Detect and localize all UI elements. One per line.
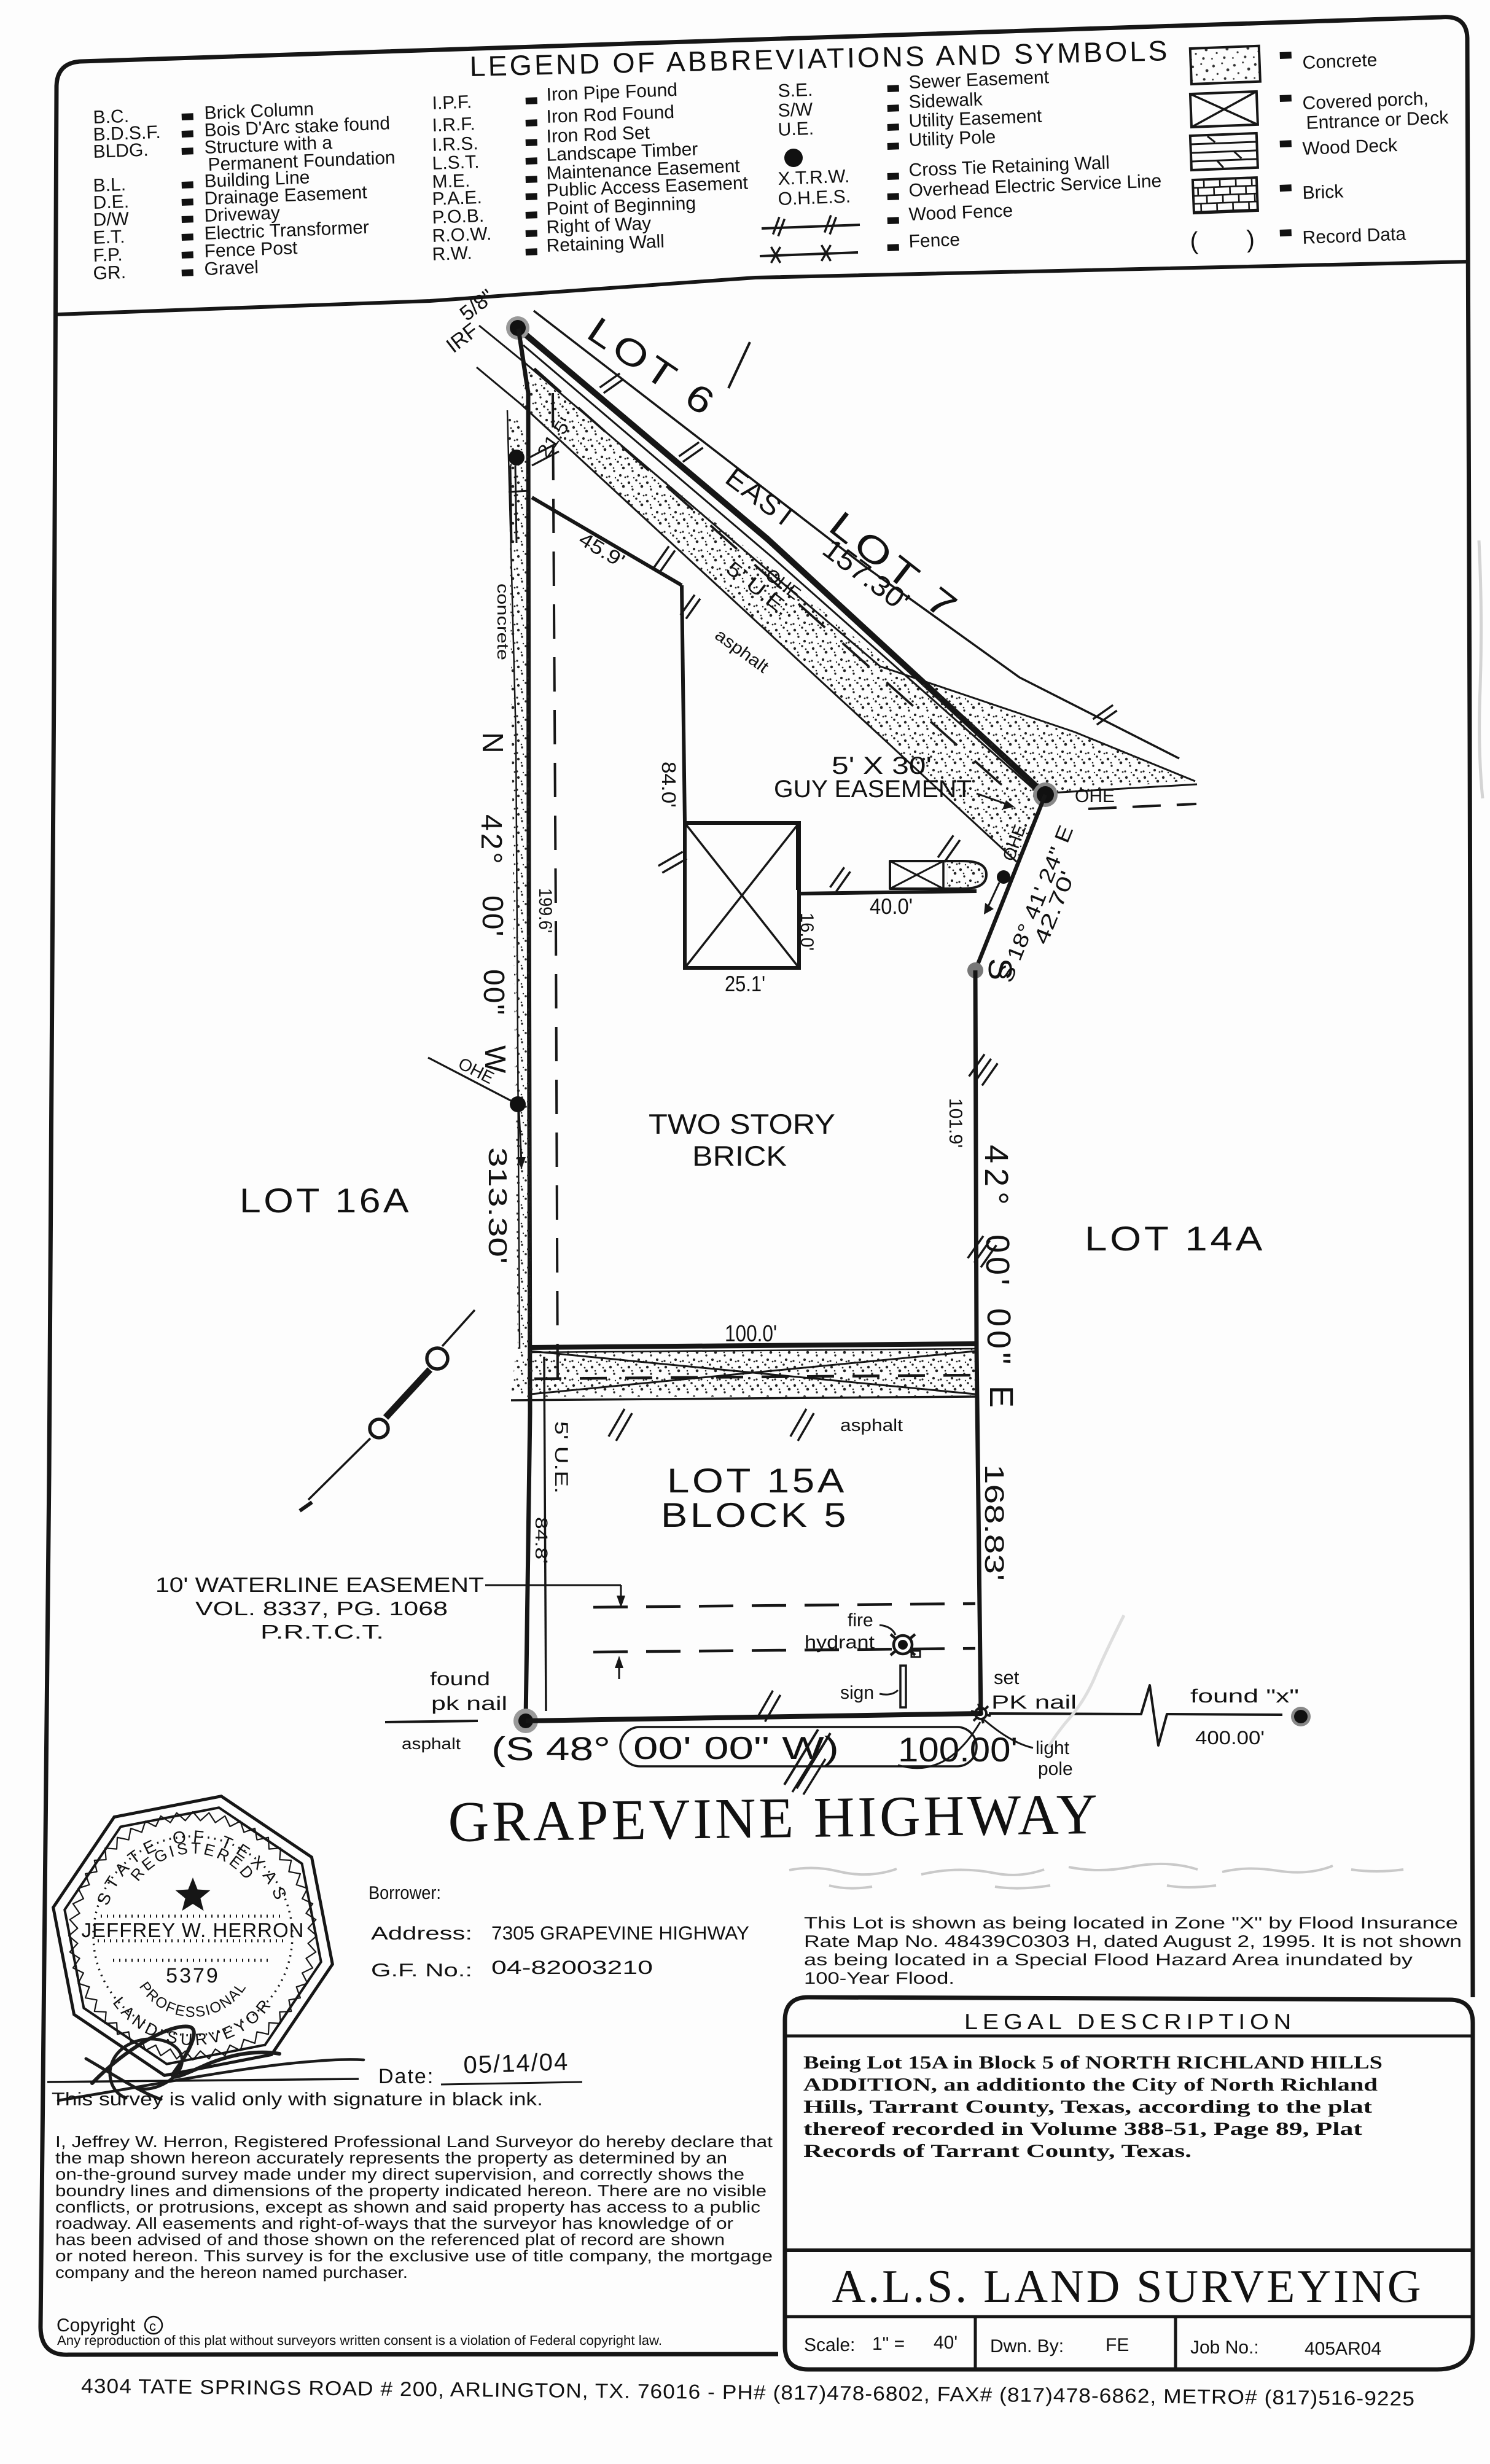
svg-text:found "x": found "x" [1190, 1685, 1299, 1707]
svg-text:(S 48°: (S 48° [491, 1731, 610, 1768]
svg-text:O.H.E.S.: O.H.E.S. [778, 186, 851, 209]
svg-text:I, Jeffrey W. Herron, Register: I, Jeffrey W. Herron, Registered Profess… [55, 2132, 773, 2151]
svg-text:Borrower:: Borrower: [369, 1883, 441, 1903]
svg-text:Job No.:: Job No.: [1190, 2337, 1259, 2358]
svg-text:sign: sign [840, 1683, 874, 1703]
svg-text:10' WATERLINE EASEMENT: 10' WATERLINE EASEMENT [155, 1573, 484, 1597]
svg-text:This Lot is shown as being loc: This Lot is shown as being located in Zo… [804, 1914, 1458, 1932]
svg-text:Wood Deck: Wood Deck [1302, 135, 1398, 159]
svg-text:LOT 16A: LOT 16A [240, 1181, 412, 1220]
svg-text:Wood Fence: Wood Fence [908, 201, 1013, 225]
svg-text:VOL. 8337, PG. 1068: VOL. 8337, PG. 1068 [195, 1597, 448, 1620]
svg-text:G.F. No.:: G.F. No.: [371, 1960, 472, 1981]
svg-text:100.00': 100.00' [898, 1730, 1018, 1769]
svg-text:ADDITION, an additionto the Ci: ADDITION, an additionto the City of Nort… [803, 2075, 1378, 2095]
svg-text:(: ( [1190, 227, 1199, 255]
svg-text:Rate Map No. 48439C0303 H, dat: Rate Map No. 48439C0303 H, dated August … [804, 1932, 1462, 1951]
svg-text:42°: 42° [475, 814, 507, 867]
svg-text:16.0': 16.0' [797, 913, 817, 951]
svg-text:the map shown hereon accuratel: the map shown hereon accurately represen… [55, 2149, 727, 2167]
svg-text:found: found [430, 1668, 490, 1690]
svg-text:PK nail: PK nail [991, 1691, 1077, 1713]
svg-text:pole: pole [1038, 1759, 1073, 1779]
svg-text:thereof recorded in Volume 388: thereof recorded in Volume 388-51, Page … [803, 2119, 1362, 2139]
svg-text:set: set [994, 1667, 1020, 1688]
svg-text:Gravel: Gravel [204, 257, 259, 279]
svg-text:or noted hereon. This survey i: or noted hereon. This survey is for the … [55, 2247, 773, 2265]
svg-text:S.E.: S.E. [778, 80, 813, 101]
svg-text:A.L.S. LAND SURVEYING: A.L.S. LAND SURVEYING [832, 2261, 1424, 2312]
svg-text:BLOCK 5: BLOCK 5 [661, 1495, 849, 1534]
svg-text:on-the-ground survey made unde: on-the-ground survey made under my direc… [55, 2165, 744, 2183]
svg-text:Fence: Fence [908, 230, 961, 252]
svg-text:LOT 15A: LOT 15A [667, 1461, 847, 1500]
svg-text:00": 00" [477, 969, 510, 1016]
svg-text:100-Year Flood.: 100-Year Flood. [804, 1969, 954, 1987]
svg-text:P.R.T.C.T.: P.R.T.C.T. [260, 1621, 384, 1643]
svg-text:as being located in a Special: as being located in a Special Flood Haza… [804, 1951, 1413, 1969]
svg-text:c: c [149, 2318, 156, 2334]
svg-text:84.0': 84.0' [658, 762, 680, 808]
svg-text:BRICK: BRICK [692, 1140, 787, 1172]
svg-text:Address:: Address: [371, 1924, 472, 1944]
svg-text:5' U.E.: 5' U.E. [551, 1421, 571, 1494]
svg-text:313.30': 313.30' [483, 1147, 512, 1264]
svg-text:Utility Pole: Utility Pole [908, 127, 996, 150]
svg-text:asphalt: asphalt [402, 1734, 461, 1753]
svg-text:hydrant: hydrant [805, 1632, 875, 1653]
svg-text:1" =: 1" = [872, 2334, 905, 2354]
svg-text:fire: fire [848, 1610, 873, 1631]
svg-text:Date:: Date: [378, 2065, 434, 2088]
svg-text:5379: 5379 [166, 1964, 220, 1987]
svg-text:BLDG.: BLDG. [93, 140, 149, 162]
svg-text:00': 00' [476, 895, 509, 938]
svg-text:40': 40' [934, 2333, 958, 2353]
svg-text:Hills, Tarrant County, Texas,: Hills, Tarrant County, Texas, according … [803, 2097, 1372, 2117]
svg-text:04-82003210: 04-82003210 [491, 1957, 653, 1978]
svg-text:concrete: concrete [494, 583, 512, 660]
svg-text:roadway. All easements and rig: roadway. All easements and right-of-ways… [55, 2214, 733, 2232]
svg-text:boundry lines and dimensions o: boundry lines and dimensions of the prop… [55, 2181, 766, 2200]
svg-text:00' 00" W): 00' 00" W) [633, 1731, 839, 1766]
svg-text:U.E.: U.E. [778, 119, 814, 140]
svg-text:OHE: OHE [1075, 786, 1115, 806]
svg-text:has been advised of and those: has been advised of and those shown on t… [55, 2231, 725, 2249]
svg-text:Records of Tarrant County, Tex: Records of Tarrant County, Texas. [803, 2141, 1192, 2161]
svg-text:I.P.F.: I.P.F. [432, 92, 472, 114]
svg-text:400.00': 400.00' [1195, 1727, 1265, 1749]
svg-text:101.9': 101.9' [945, 1098, 965, 1148]
svg-text:X.T.R.W.: X.T.R.W. [778, 166, 850, 189]
svg-text:199.6': 199.6' [535, 888, 555, 933]
svg-text:S/W: S/W [778, 99, 814, 121]
svg-text:00': 00' [979, 1234, 1016, 1289]
svg-text:): ) [1246, 226, 1255, 253]
svg-text:This survey is valid only with: This survey is valid only with signature… [52, 2089, 543, 2110]
svg-text:R.W.: R.W. [432, 243, 472, 265]
svg-text:100.0': 100.0' [725, 1321, 777, 1347]
svg-text:JEFFREY W. HERRON: JEFFREY W. HERRON [82, 1919, 305, 1941]
svg-text:Scale:: Scale: [804, 2335, 855, 2355]
svg-text:40.0': 40.0' [870, 894, 913, 919]
svg-text:FE: FE [1106, 2335, 1129, 2355]
svg-text:Brick: Brick [1302, 181, 1344, 203]
svg-text:Being Lot 15A in Block 5 of NO: Being Lot 15A in Block 5 of NORTH RICHLA… [803, 2053, 1383, 2073]
svg-text:TWO STORY: TWO STORY [649, 1108, 835, 1140]
svg-text:405AR04: 405AR04 [1305, 2339, 1381, 2359]
svg-text:LOT 14A: LOT 14A [1085, 1219, 1265, 1258]
svg-text:pk nail: pk nail [431, 1693, 507, 1714]
svg-text:Any reproduction of this plat: Any reproduction of this plat without su… [57, 2333, 662, 2348]
svg-text:company and the hereon named p: company and the hereon named purchaser. [55, 2263, 408, 2282]
svg-text:7305 GRAPEVINE HIGHWAY: 7305 GRAPEVINE HIGHWAY [491, 1922, 749, 1944]
svg-text:asphalt: asphalt [840, 1416, 903, 1435]
svg-text:LEGAL DESCRIPTION: LEGAL DESCRIPTION [964, 2009, 1296, 2034]
svg-text:E: E [983, 1386, 1020, 1408]
svg-text:25.1': 25.1' [725, 971, 765, 996]
svg-text:GRAPEVINE HIGHWAY: GRAPEVINE HIGHWAY [448, 1782, 1101, 1854]
svg-text:Record Data: Record Data [1302, 224, 1406, 248]
svg-text:Dwn. By:: Dwn. By: [990, 2336, 1064, 2357]
svg-text:conflicts, or protrusions, exc: conflicts, or protrusions, except as sho… [55, 2197, 760, 2216]
svg-text:I.R.F.: I.R.F. [432, 114, 475, 136]
svg-text:S: S [981, 958, 1018, 980]
svg-text:42°: 42° [978, 1145, 1015, 1210]
svg-text:84.8': 84.8' [532, 1517, 551, 1564]
svg-text:GUY EASEMENT: GUY EASEMENT [774, 776, 972, 803]
svg-text:GR.: GR. [93, 262, 127, 284]
svg-text:05/14/04: 05/14/04 [463, 2048, 569, 2079]
svg-text:N: N [476, 732, 509, 754]
svg-text:00": 00" [980, 1308, 1017, 1368]
svg-text:Concrete: Concrete [1302, 50, 1378, 73]
svg-text:168.83': 168.83' [979, 1464, 1009, 1581]
